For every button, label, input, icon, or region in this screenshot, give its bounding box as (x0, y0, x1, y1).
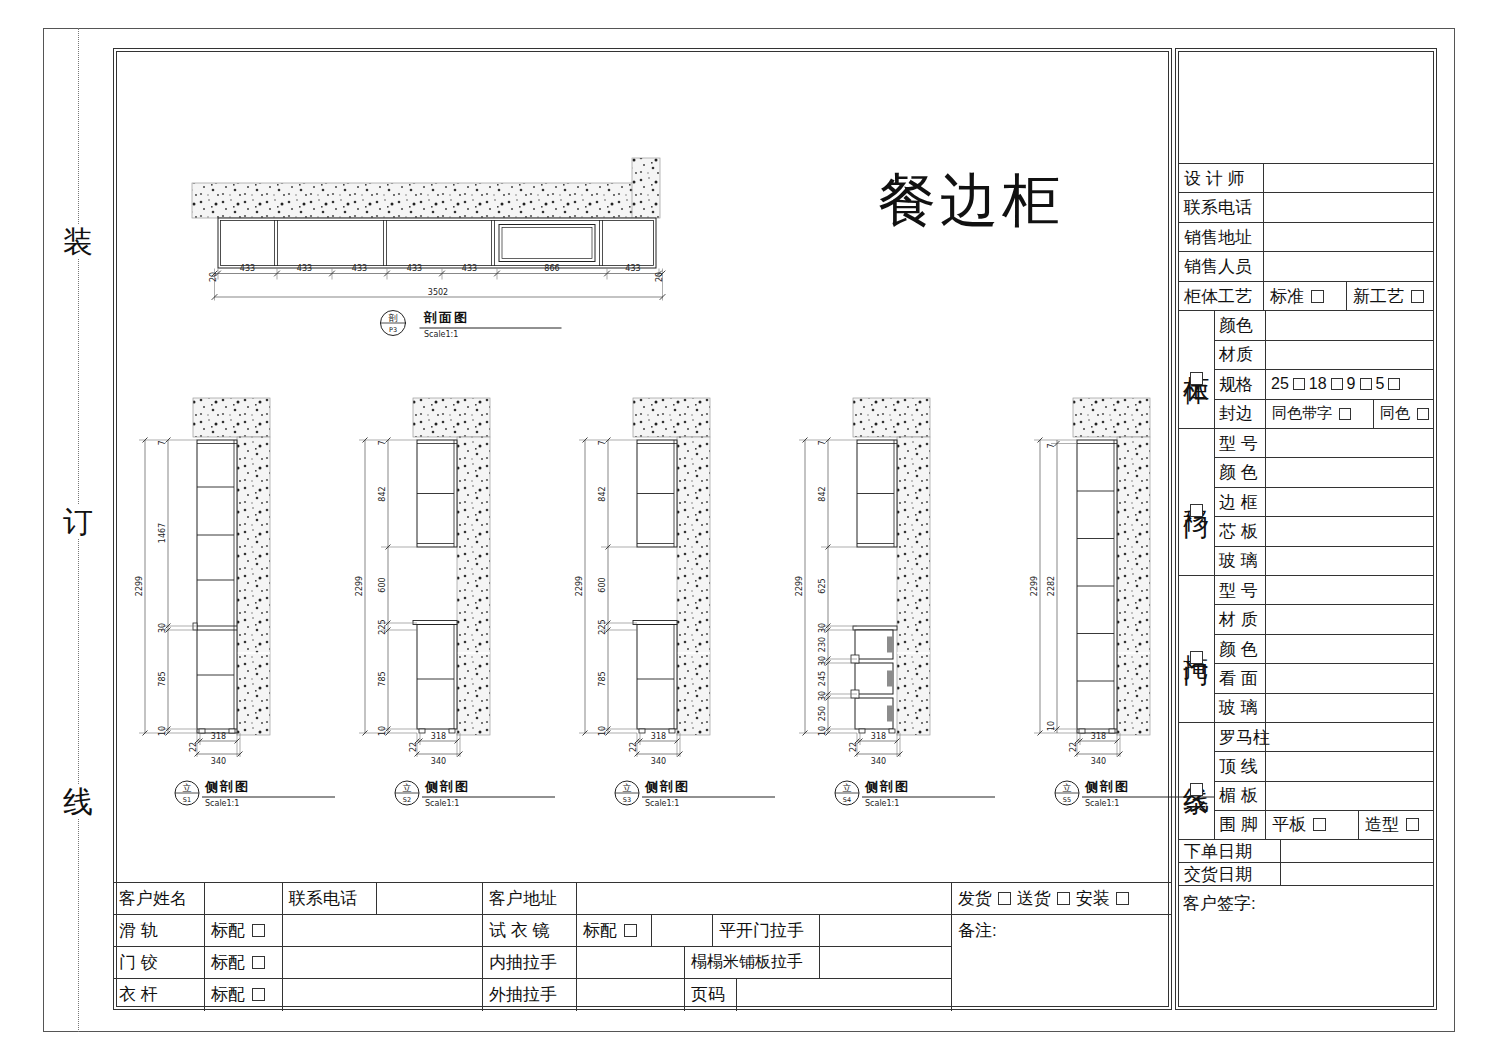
dim-label: 433 (625, 264, 640, 273)
swing-door-handle-label: 平开门拉手 (713, 915, 820, 947)
side-view-s1: 2299 7 1467 30 785 10 22 318 340 立 S1 侧剖… (135, 398, 335, 808)
fitting-mirror-standard: 标配 (577, 915, 652, 947)
designer-row: 设 计 师 (1179, 164, 1433, 193)
sales-person-value (1264, 252, 1433, 281)
outer-drawer-handle-value (577, 979, 685, 1012)
dim-label: 22 (409, 742, 418, 752)
dim-label: 22 (629, 742, 638, 752)
tatami-board-handle-label: 榻榻米铺板拉手 (685, 947, 820, 979)
drawer-slide (887, 671, 893, 687)
svg-text:S2: S2 (403, 796, 411, 804)
group-name-label: 线条 (1184, 766, 1210, 774)
side-view-s2: 2299 7 842 600 225 785 10 22 318 340 立 S… (355, 398, 555, 808)
dim-label: 785 (378, 671, 387, 686)
dim-label: 842 (598, 486, 607, 501)
hinged-face-label: 看 面 (1215, 664, 1266, 692)
ship-checkbox (998, 892, 1011, 905)
dim-label: 10 (1047, 721, 1056, 731)
plinth-flat-checkbox (1313, 818, 1326, 831)
edge-same-color-option: 同色 (1374, 400, 1433, 429)
dim-label: 433 (462, 264, 477, 273)
dim-label: 318 (1091, 732, 1106, 741)
dim-label: 340 (431, 757, 446, 766)
hinged-color-label: 颜 色 (1215, 635, 1266, 663)
sliding-model-value (1266, 429, 1433, 457)
dim-label: 7 (158, 440, 167, 445)
dim-label: 225 (378, 619, 387, 634)
dim-label-overall: 2299 (135, 576, 144, 596)
dim-label: 842 (818, 486, 827, 501)
dim-label: 10 (598, 726, 607, 736)
sliding-core-value (1266, 517, 1433, 545)
cabinet-color-value (1266, 311, 1433, 340)
view-tag: 立 S2 侧剖图 Scale1:1 (395, 779, 555, 808)
customer-address-value (577, 883, 952, 915)
hinged-material-label: 材 质 (1215, 605, 1266, 633)
view-title: 剖面图 (423, 310, 469, 325)
dim-label: 340 (211, 757, 226, 766)
roman-column-value (1266, 723, 1433, 751)
hinged-material-value (1266, 605, 1433, 633)
dim-label: 318 (211, 732, 226, 741)
sliding-glass-value (1266, 547, 1433, 575)
install-checkbox (1116, 892, 1129, 905)
sliding-frame-value (1266, 488, 1433, 516)
view-title: 侧剖图 (204, 779, 250, 794)
dim-label: 600 (598, 577, 607, 592)
customer-name-value (205, 883, 283, 915)
dim-label-overall: 2299 (1030, 576, 1039, 596)
dim-label: 30 (818, 656, 827, 666)
dim-label: 230 (818, 637, 827, 652)
edge-color-text-label: 同色带字 (1272, 404, 1332, 423)
dim-label: 22 (189, 742, 198, 752)
deliver-label: 送货 (1017, 887, 1051, 910)
tatami-board-handle-value (820, 947, 952, 979)
craft-new-checkbox (1411, 290, 1424, 303)
hinged-color-value (1266, 635, 1433, 663)
inner-drawer-handle-value (577, 947, 685, 979)
delivery-date-row: 交货日期 (1179, 863, 1433, 886)
hinged-glass-value (1266, 694, 1433, 722)
plan-section-view: 20 433 433 433 433 433 866 433 20 3502 剖… (192, 158, 665, 339)
side-view-s4: 2299 7 842 625 30 230 30 245 30 250 10 2… (795, 398, 995, 808)
plinth-shaped-option: 造型 (1359, 811, 1433, 839)
hinged-glass-label: 玻 璃 (1215, 694, 1266, 722)
pelmet-value (1266, 782, 1433, 810)
sales-address-value (1264, 223, 1433, 251)
cabinet-spec-label: 规格 (1215, 370, 1266, 399)
svg-text:Scale1:1: Scale1:1 (865, 799, 899, 808)
plinth-shaped-checkbox (1406, 818, 1419, 831)
dim-label: 10 (158, 726, 167, 736)
svg-text:侧剖图: 侧剖图 (864, 779, 910, 794)
view-tag: 立 S3 侧剖图 Scale1:1 (615, 779, 775, 808)
dim-label: 318 (651, 732, 666, 741)
drawer-stack (851, 630, 893, 729)
dim-label: 1467 (158, 523, 167, 543)
cabinet-edge-label: 封边 (1215, 400, 1266, 429)
dim-label: 245 (818, 671, 827, 686)
standard-label: 标配 (211, 983, 245, 1006)
slide-rail-label: 滑 轨 (113, 915, 205, 947)
plinth-flat-label: 平板 (1272, 813, 1306, 836)
sliding-color-label: 颜 色 (1215, 458, 1266, 486)
dim-label-overall: 3502 (428, 288, 448, 297)
edge-same-color-label: 同色 (1380, 404, 1410, 423)
dim-label: 318 (871, 732, 886, 741)
designer-label: 设 计 师 (1179, 164, 1264, 192)
dim-label: 20 (655, 272, 664, 282)
order-date-label: 下单日期 (1179, 840, 1281, 862)
dim-label: 22 (849, 742, 858, 752)
clothes-rail-label: 衣 杆 (113, 979, 205, 1012)
cabinet-color-label: 颜色 (1215, 311, 1266, 340)
sales-address-row: 销售地址 (1179, 223, 1433, 252)
dim-label: 7 (598, 440, 607, 445)
dim-label: 433 (352, 264, 367, 273)
customer-address-label: 客户地址 (483, 883, 577, 915)
svg-text:Scale1:1: Scale1:1 (1085, 799, 1119, 808)
dim-label: 7 (1047, 443, 1056, 448)
sliding-model-label: 型 号 (1215, 429, 1266, 457)
countertop (413, 621, 457, 625)
svg-text:Scale1:1: Scale1:1 (425, 799, 459, 808)
svg-text:立: 立 (843, 783, 852, 793)
fitting-mirror-label: 试 衣 镜 (483, 915, 577, 947)
dim-label: 625 (818, 578, 827, 593)
group-name-label: 柜体 (1184, 355, 1210, 363)
cabinet-body-group: 柜体 颜色 材质 规格 25 18 9 5 封边 同色带字 (1179, 311, 1433, 429)
svg-text:S4: S4 (843, 796, 851, 804)
swing-door-handle-value (820, 915, 952, 947)
delivery-date-value (1281, 863, 1433, 885)
spec-5-label: 5 (1376, 375, 1385, 393)
slide-rail-standard: 标配 (205, 915, 283, 947)
craft-standard-checkbox (1311, 290, 1324, 303)
craft-new-label: 新工艺 (1353, 285, 1404, 308)
cabinet-material-label: 材质 (1215, 341, 1266, 370)
clothes-rail-standard: 标配 (205, 979, 283, 1012)
customer-phone-label: 联系电话 (283, 883, 377, 915)
hinged-door-group: 掩门 型 号 材 质 颜 色 看 面 玻 璃 (1179, 576, 1433, 723)
group-name-label: 移门 (1184, 487, 1210, 495)
svg-text:剖: 剖 (389, 313, 398, 323)
customer-name-label: 客户姓名 (113, 883, 205, 915)
pelmet-label: 楣 板 (1215, 782, 1266, 810)
dim-label: 7 (818, 440, 827, 445)
svg-text:立: 立 (403, 783, 412, 793)
cabinet-spec-options: 25 18 9 5 (1266, 370, 1433, 399)
deliver-checkbox (1057, 892, 1070, 905)
molding-name: 线条 (1179, 723, 1215, 839)
spec-18-label: 18 (1309, 375, 1327, 393)
sliding-glass-label: 玻 璃 (1215, 547, 1266, 575)
dim-label-overall: 2299 (575, 576, 584, 596)
dim-label: 250 (818, 706, 827, 721)
dim-label: 785 (158, 671, 167, 686)
standard-label: 标配 (583, 919, 617, 942)
dim-label: 225 (598, 619, 607, 634)
fitting-mirror-value (652, 915, 713, 947)
dim-label: 340 (871, 757, 886, 766)
sales-address-label: 销售地址 (1179, 223, 1264, 251)
sliding-door-checkbox (1190, 504, 1203, 517)
dim-label: 340 (651, 757, 666, 766)
plinth-flat-option: 平板 (1266, 811, 1359, 839)
bottom-table: 客户姓名 联系电话 客户地址 发货 送货 安装 备注: 滑 轨 标配 试 衣 镜… (113, 882, 1172, 1010)
svg-text:Scale1:1: Scale1:1 (645, 799, 679, 808)
dim-label: 785 (598, 671, 607, 686)
note-cell: 备注: (952, 915, 1172, 1012)
delivery-date-label: 交货日期 (1179, 863, 1281, 885)
wall-hatch (237, 437, 270, 735)
dim-label-overall: 2299 (355, 576, 364, 596)
spec-9-label: 9 (1347, 375, 1356, 393)
designer-value (1264, 164, 1433, 192)
dim-label: 433 (240, 264, 255, 273)
dim-label: 10 (818, 726, 827, 736)
order-date-row: 下单日期 (1179, 840, 1433, 863)
title-block: 设 计 师 联系电话 销售地址 销售人员 柜体工艺 标准 新工艺 柜体 颜色 材… (1175, 48, 1437, 1010)
dim-label: 340 (1091, 757, 1106, 766)
ship-label: 发货 (958, 887, 992, 910)
hinged-model-label: 型 号 (1215, 576, 1266, 604)
view-scale: Scale1:1 (424, 330, 458, 339)
customer-phone-value (377, 883, 483, 915)
sales-person-label: 销售人员 (1179, 252, 1264, 281)
dim-label: 318 (431, 732, 446, 741)
edge-color-text-option: 同色带字 (1266, 400, 1374, 429)
counter-notch (193, 623, 197, 630)
install-label: 安装 (1076, 887, 1110, 910)
wall-hatch (192, 183, 633, 218)
cabinet-material-value (1266, 341, 1433, 370)
sliding-color-value (1266, 458, 1433, 486)
countertop (853, 626, 897, 630)
outer-drawer-handle-label: 外抽拉手 (483, 979, 577, 1012)
contact-phone-value (1264, 193, 1433, 222)
spec-25-checkbox (1293, 378, 1305, 390)
hinged-face-value (1266, 664, 1433, 692)
wall-hatch (193, 398, 270, 437)
wall-hatch-step (632, 158, 660, 218)
craft-standard-option: 标准 (1264, 282, 1347, 310)
dim-label: 433 (297, 264, 312, 273)
edge-color-text-checkbox (1339, 408, 1351, 420)
side-view-s3: 2299 7 842 600 225 785 10 22 318 340 立 S… (575, 398, 775, 808)
svg-text:立: 立 (623, 783, 632, 793)
dim-label: 30 (158, 623, 167, 633)
view-tag: 立 S4 侧剖图 Scale1:1 (835, 779, 995, 808)
dim-label: 2282 (1047, 576, 1056, 596)
view-tag: 立 S1 侧剖图 Scale1:1 (175, 779, 335, 808)
dim-label: 7 (378, 440, 387, 445)
svg-text:S1: S1 (183, 796, 191, 804)
edge-same-color-checkbox (1417, 408, 1429, 420)
clothes-rail-value (283, 979, 483, 1012)
svg-text:侧剖图: 侧剖图 (424, 779, 470, 794)
molding-checkbox (1190, 783, 1203, 796)
hinged-door-checkbox (1190, 651, 1203, 664)
svg-text:侧剖图: 侧剖图 (1084, 779, 1130, 794)
spec-5-checkbox (1388, 378, 1400, 390)
spec-18-checkbox (1331, 378, 1343, 390)
craft-new-option: 新工艺 (1347, 282, 1433, 310)
page-number-value (737, 979, 952, 1012)
door-hinge-standard: 标配 (205, 947, 283, 979)
molding-group: 线条 罗马柱 顶 线 楣 板 围 脚 平板 造型 (1179, 723, 1433, 840)
group-name-label: 掩门 (1184, 634, 1210, 642)
dim-label: 22 (1069, 742, 1078, 752)
top-molding-value (1266, 752, 1433, 780)
standard-label: 标配 (211, 951, 245, 974)
dim-label: 20 (209, 272, 218, 282)
slide-rail-value (283, 915, 483, 947)
sliding-core-label: 芯 板 (1215, 517, 1266, 545)
dim-label-overall: 2299 (795, 576, 804, 596)
cabinet-craft-label: 柜体工艺 (1179, 282, 1264, 310)
dim-label: 600 (378, 577, 387, 592)
view-scale: Scale1:1 (205, 799, 239, 808)
door-hinge-checkbox (252, 956, 265, 969)
hinged-model-value (1266, 576, 1433, 604)
drawer-slide (887, 637, 893, 653)
svg-text:立: 立 (183, 783, 192, 793)
cabinet-body-checkbox (1190, 372, 1203, 385)
logo-area (1179, 52, 1433, 164)
contact-phone-label: 联系电话 (1179, 193, 1264, 222)
plinth-label: 围 脚 (1215, 811, 1266, 839)
customer-signature-area: 客户签字: (1179, 886, 1433, 1006)
fitting-mirror-checkbox (624, 924, 637, 937)
sales-person-row: 销售人员 (1179, 252, 1433, 282)
dim-label: 866 (544, 264, 559, 273)
svg-text:侧剖图: 侧剖图 (644, 779, 690, 794)
top-molding-label: 顶 线 (1215, 752, 1266, 780)
cabinet-body-name: 柜体 (1179, 311, 1215, 428)
sliding-frame-label: 边 框 (1215, 488, 1266, 516)
dim-label: 30 (818, 623, 827, 633)
door-hinge-label: 门 铰 (113, 947, 205, 979)
sliding-door-name: 移门 (1179, 429, 1215, 575)
roman-column-label: 罗马柱 (1215, 723, 1266, 751)
plinth-shaped-label: 造型 (1365, 813, 1399, 836)
sliding-door-group: 移门 型 号 颜 色 边 框 芯 板 玻 璃 (1179, 429, 1433, 576)
door-hinge-value (283, 947, 483, 979)
dim-label: 842 (378, 486, 387, 501)
spec-25-label: 25 (1271, 375, 1289, 393)
page-number-label: 页码 (685, 979, 737, 1012)
dim-label: 433 (407, 264, 422, 273)
drawer-slide (887, 706, 893, 722)
svg-text:P3: P3 (389, 326, 397, 334)
craft-standard-label: 标准 (1270, 285, 1304, 308)
contact-phone-row: 联系电话 (1179, 193, 1433, 223)
svg-text:立: 立 (1063, 783, 1072, 793)
dim-label: 30 (818, 691, 827, 701)
spec-9-checkbox (1360, 378, 1372, 390)
plan-view-tag: 剖 P3 剖面图 Scale1:1 (381, 310, 562, 339)
dim-label: 10 (378, 726, 387, 736)
svg-text:S3: S3 (623, 796, 631, 804)
standard-label: 标配 (211, 919, 245, 942)
clothes-rail-checkbox (252, 988, 265, 1001)
order-date-value (1281, 840, 1433, 862)
cabinet-craft-row: 柜体工艺 标准 新工艺 (1179, 282, 1433, 311)
hinged-door-name: 掩门 (1179, 576, 1215, 722)
shipping-options: 发货 送货 安装 (952, 883, 1172, 915)
svg-text:S5: S5 (1063, 796, 1071, 804)
inner-drawer-handle-label: 内抽拉手 (483, 947, 577, 979)
slide-rail-checkbox (252, 924, 265, 937)
